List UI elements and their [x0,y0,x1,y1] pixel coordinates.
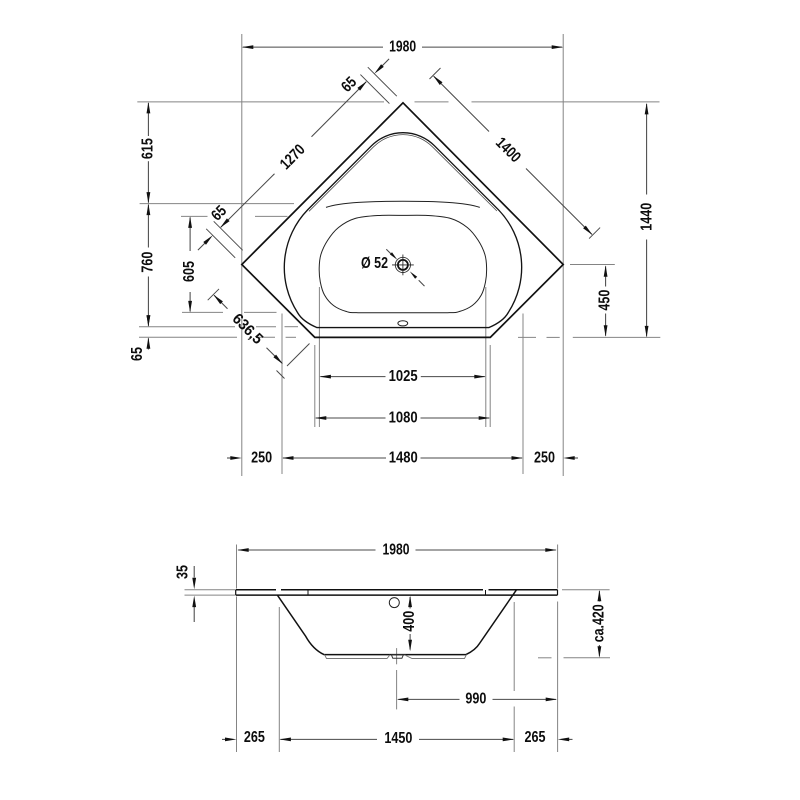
svg-text:1980: 1980 [389,39,416,56]
svg-text:450: 450 [597,290,614,311]
svg-text:1980: 1980 [383,542,410,559]
svg-text:605: 605 [181,261,198,282]
svg-text:1440: 1440 [639,203,656,231]
svg-text:35: 35 [175,565,192,579]
svg-text:1080: 1080 [389,410,418,427]
svg-text:1450: 1450 [384,730,412,747]
svg-text:Ø 52: Ø 52 [361,255,388,272]
svg-text:615: 615 [139,138,156,159]
svg-text:65: 65 [129,347,146,361]
svg-text:250: 250 [534,450,555,467]
svg-text:250: 250 [251,450,272,467]
svg-text:265: 265 [525,729,546,746]
svg-text:760: 760 [139,252,156,273]
svg-text:ca.420: ca.420 [590,604,607,642]
svg-text:990: 990 [465,690,486,707]
svg-text:1480: 1480 [389,450,418,467]
svg-text:400: 400 [401,611,418,632]
svg-text:1025: 1025 [389,368,418,385]
svg-text:265: 265 [244,729,265,746]
